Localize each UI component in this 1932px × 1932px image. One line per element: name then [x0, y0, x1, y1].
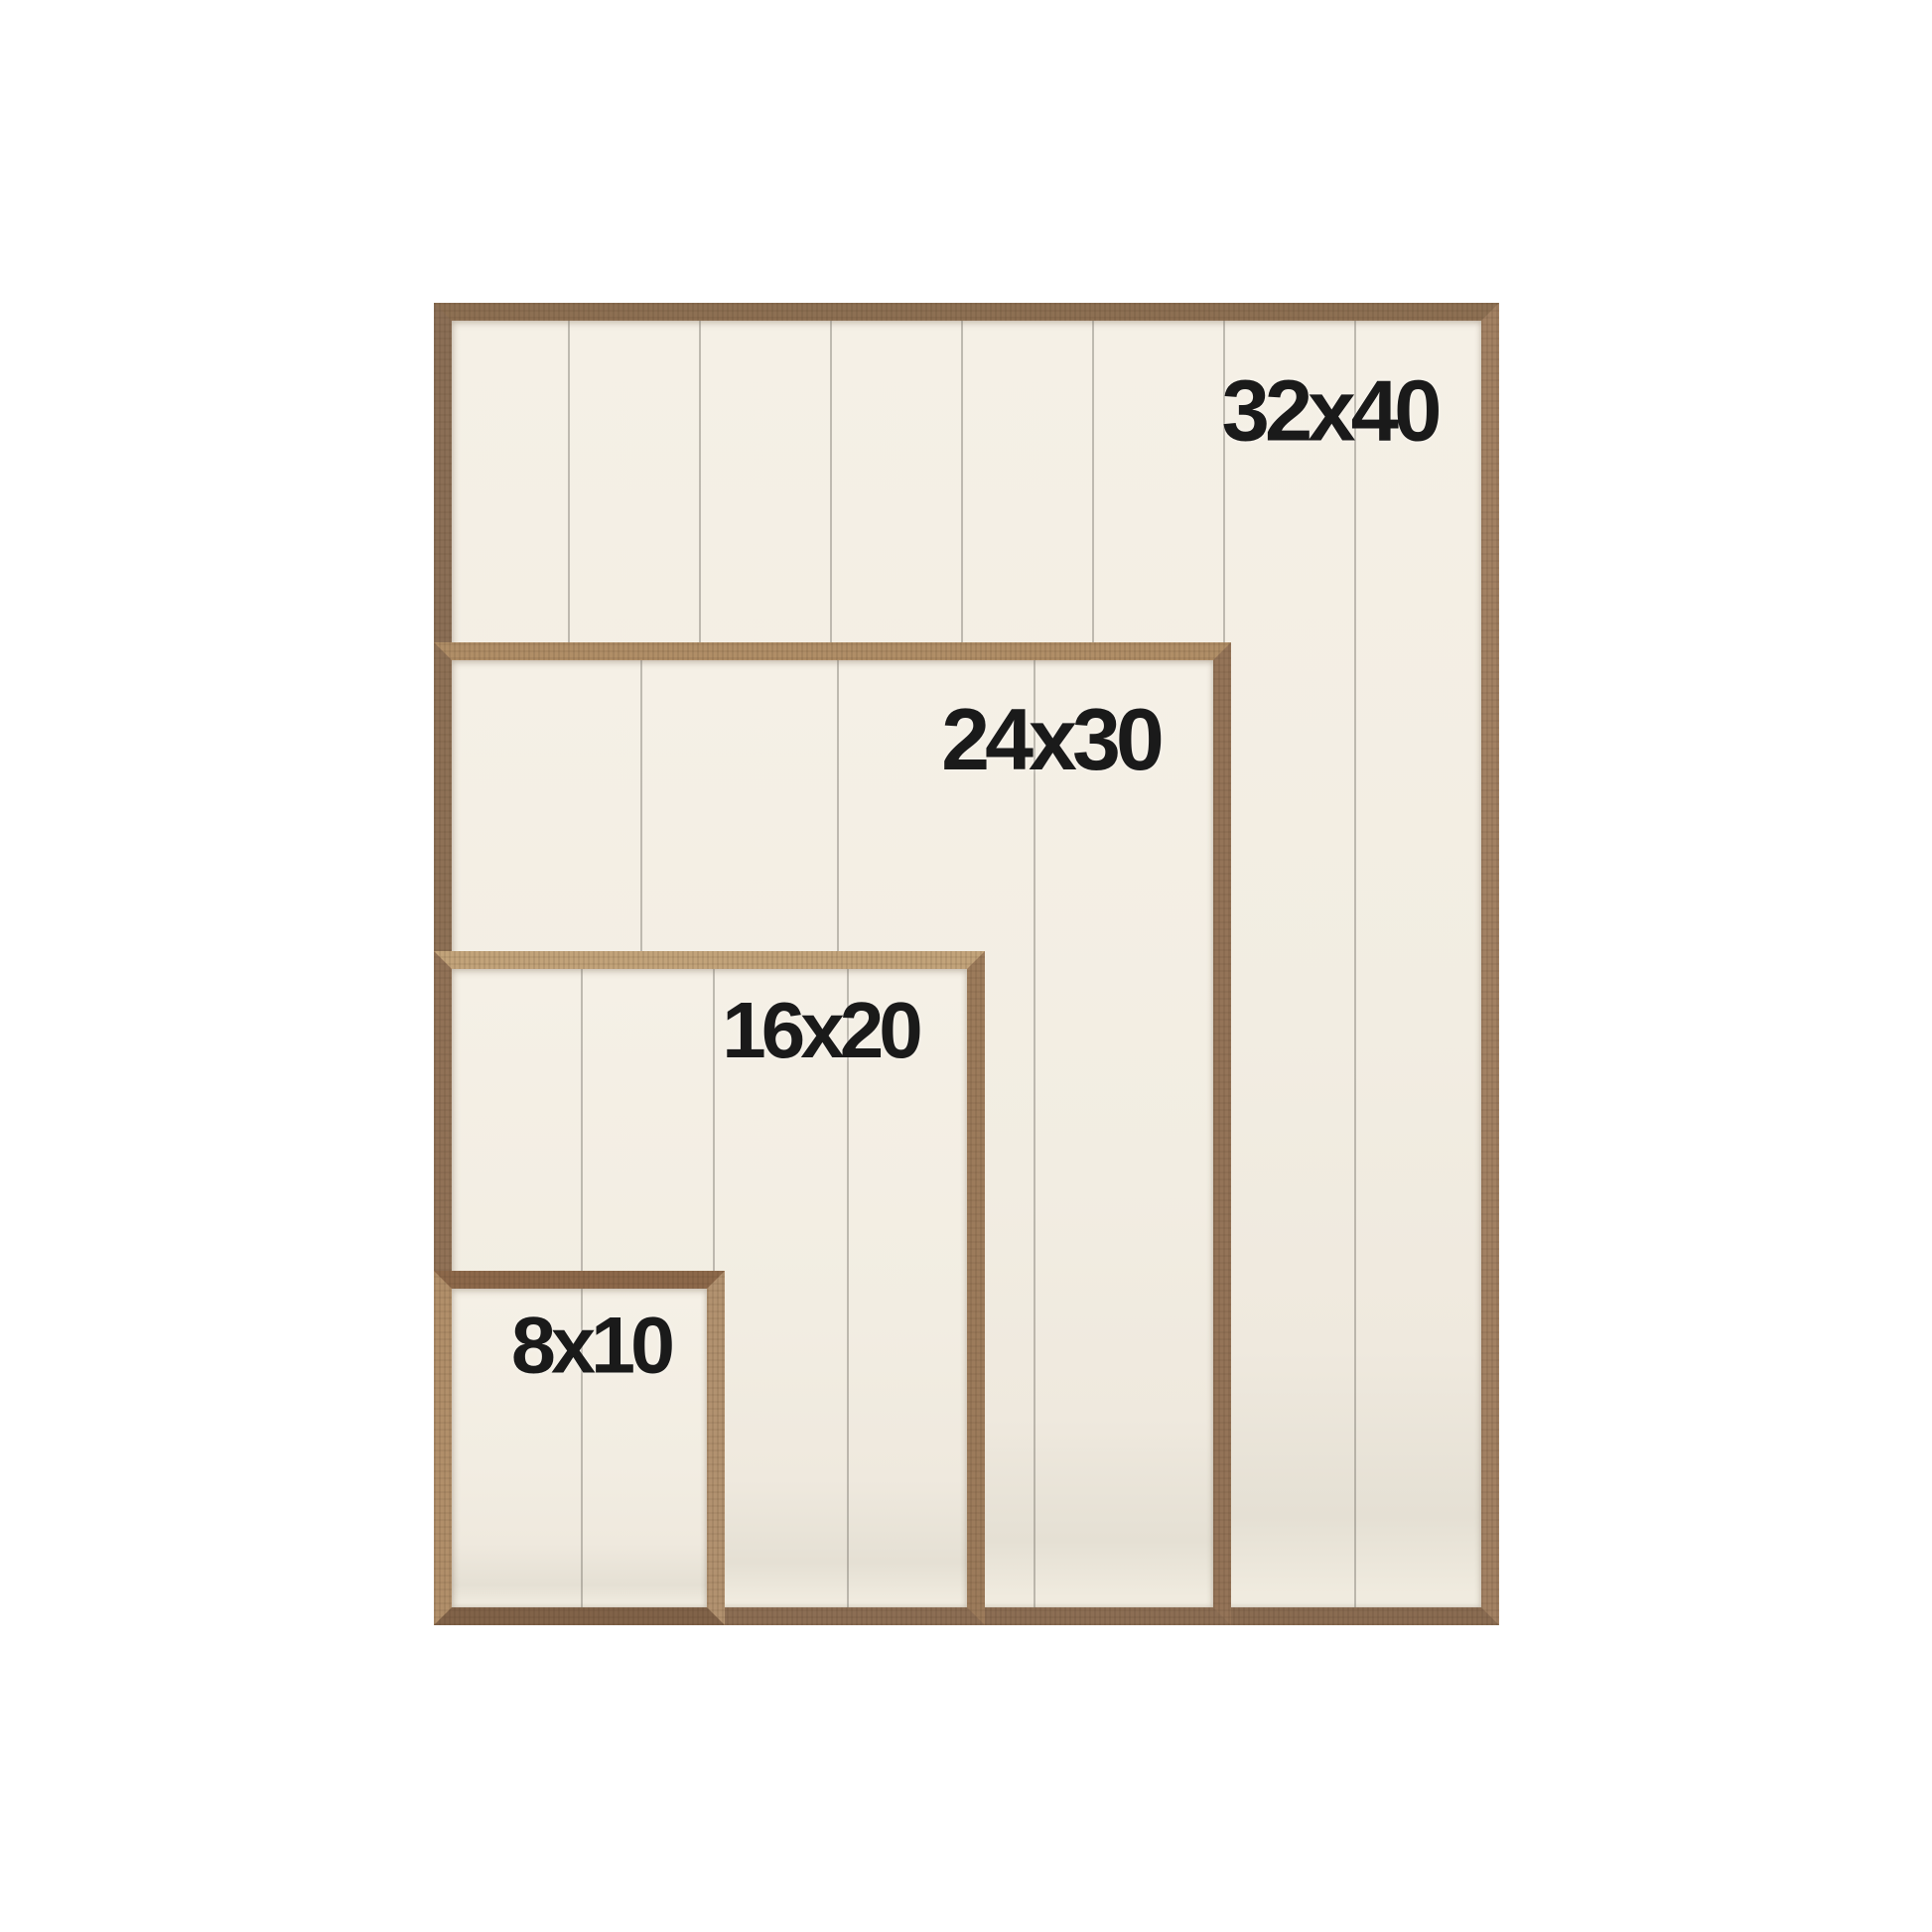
size-label-16x20: 16x20	[722, 991, 917, 1070]
backboard-8x10: 8x10	[452, 1289, 707, 1607]
plank-seam	[1354, 321, 1356, 1607]
plank-seam	[1034, 660, 1035, 1607]
frame-size-comparison: 32x40 24x30 16x20 8x10	[0, 0, 1932, 1932]
size-label-24x30: 24x30	[941, 696, 1160, 783]
size-label-32x40: 32x40	[1222, 368, 1438, 455]
frame-8x10: 8x10	[434, 1271, 725, 1625]
size-label-8x10: 8x10	[511, 1307, 670, 1387]
